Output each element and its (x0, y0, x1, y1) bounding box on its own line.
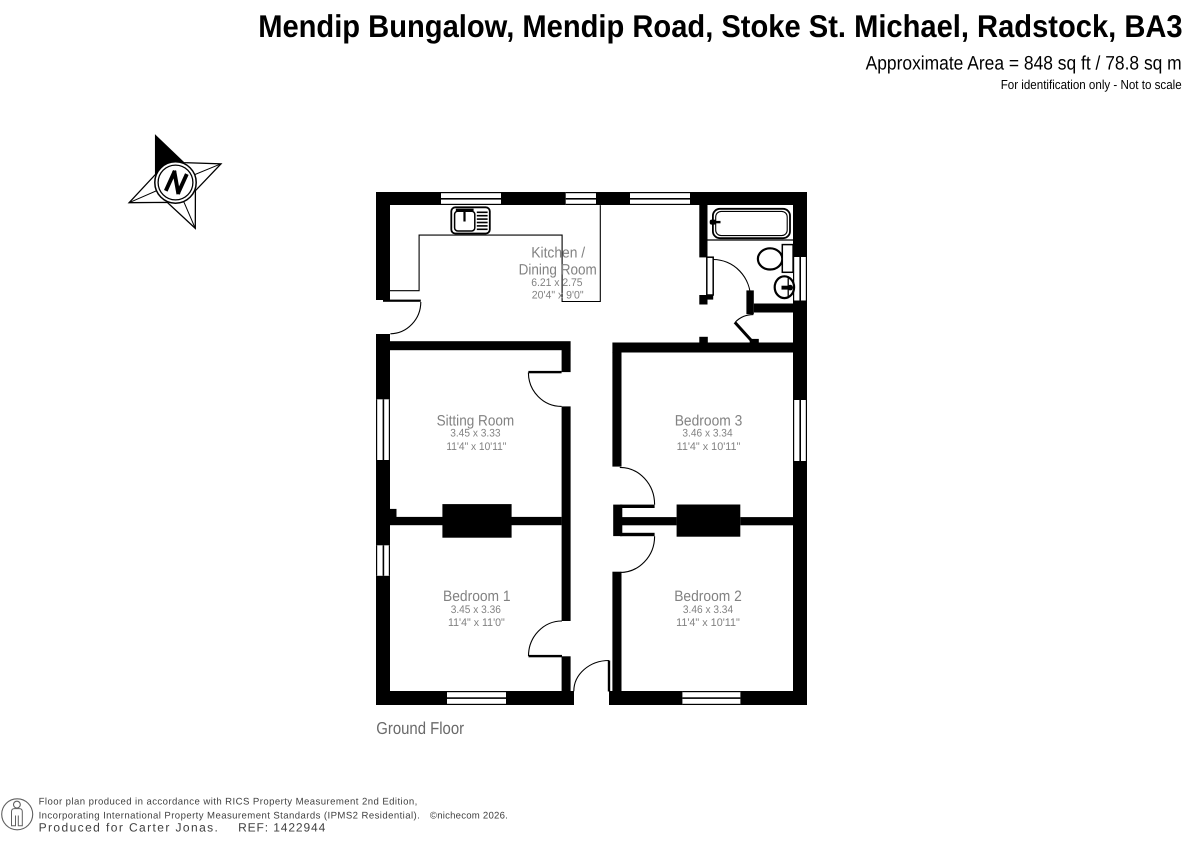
svg-text:Kitchen /: Kitchen / (531, 245, 586, 262)
svg-text:11'4" x 10'11": 11'4" x 10'11" (446, 441, 506, 453)
svg-text:11'4" x 10'11": 11'4" x 10'11" (676, 617, 740, 629)
svg-text:Bedroom 2: Bedroom 2 (674, 588, 742, 605)
svg-text:Bedroom 1: Bedroom 1 (443, 588, 511, 605)
svg-text:3.45 x 3.36: 3.45 x 3.36 (451, 604, 501, 616)
svg-text:20'4" x 9'0": 20'4" x 9'0" (532, 289, 584, 301)
svg-text:©nichecom 2026.: ©nichecom 2026. (430, 810, 508, 821)
svg-text:Dining Room: Dining Room (519, 261, 597, 278)
svg-text:Ground Floor: Ground Floor (376, 718, 464, 738)
svg-text:Approximate Area = 848 sq ft /: Approximate Area = 848 sq ft / 78.8 sq m (866, 53, 1182, 75)
svg-text:For identification only - Not: For identification only - Not to scale (1001, 77, 1182, 92)
svg-text:3.45 x 3.33: 3.45 x 3.33 (450, 428, 500, 440)
svg-text:6.21 x 2.75: 6.21 x 2.75 (531, 277, 582, 289)
svg-text:3.46 x 3.34: 3.46 x 3.34 (682, 428, 732, 440)
svg-text:Mendip Bungalow, Mendip Road,: Mendip Bungalow, Mendip Road, Stoke St. … (258, 8, 1182, 44)
svg-text:REF: 1422944: REF: 1422944 (238, 820, 326, 834)
svg-text:11'4" x 11'0": 11'4" x 11'0" (448, 617, 505, 629)
svg-text:Produced for Carter Jonas.: Produced for Carter Jonas. (39, 820, 218, 834)
svg-text:3.46 x 3.34: 3.46 x 3.34 (683, 604, 733, 616)
svg-text:11'4" x 10'11": 11'4" x 10'11" (677, 441, 741, 453)
svg-text:Floor plan produced in accorda: Floor plan produced in accordance with R… (39, 796, 418, 807)
